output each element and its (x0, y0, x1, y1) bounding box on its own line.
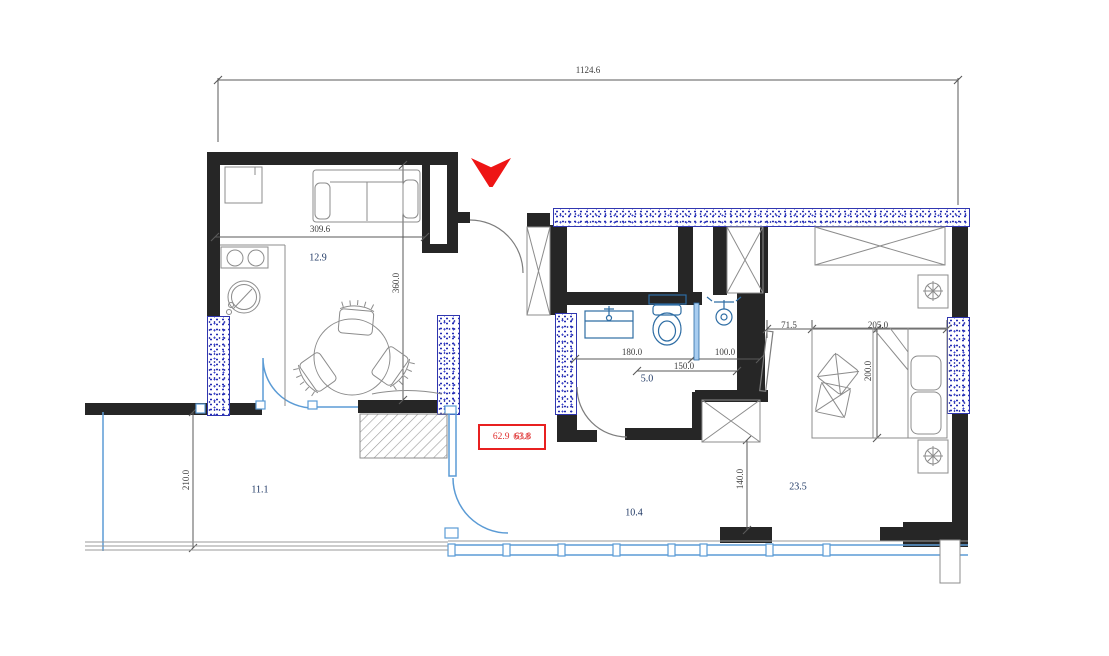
sofa (313, 170, 420, 222)
bedroom-door-leaf (760, 331, 773, 391)
shaft-box (527, 227, 763, 442)
floor-plan-canvas: 62.9 63.8 1124.6 309.6 360.0 210.0 180.0… (0, 0, 1109, 656)
fridge (225, 167, 262, 203)
door-swing (470, 220, 773, 437)
nightstand (918, 275, 948, 473)
bed (812, 328, 947, 438)
shower-faucet (707, 297, 741, 325)
dim-shower-width: 100.0 (715, 347, 735, 357)
dim-bed-gap: 71.5 (781, 320, 797, 330)
total-area-value-alt: 63.8 (515, 432, 532, 442)
dim-bath-inner: 150.0 (674, 361, 694, 371)
glass-door-frame (449, 412, 456, 476)
dim-overall-width: 1124.6 (576, 65, 600, 75)
room-area-living: 12.9 (309, 253, 327, 264)
wall-stub (940, 540, 960, 583)
dim-living-height: 360.0 (391, 273, 401, 293)
dim-terrace-height: 210.0 (181, 470, 191, 490)
kitchen-counter (220, 245, 285, 406)
toilet (649, 295, 686, 345)
console (372, 391, 442, 395)
dim-bed-width: 205.0 (868, 320, 888, 330)
dimension-lines (189, 76, 962, 552)
total-area-value: 62.9 (493, 432, 510, 442)
vanity-sink (585, 306, 633, 338)
chair (338, 299, 375, 336)
windows (103, 358, 968, 556)
room-area-hall: 10.4 (625, 508, 643, 519)
total-area-box: 62.9 63.8 (478, 424, 546, 450)
room-area-bedroom: 23.5 (789, 482, 807, 493)
plan-linework (0, 0, 1109, 656)
window-mullions (196, 401, 949, 556)
glass-door-swing (453, 478, 508, 533)
furniture (220, 167, 960, 583)
dim-living-width: 309.6 (310, 224, 330, 234)
shower-glass (694, 303, 699, 360)
dim-bed-length: 200.0 (863, 361, 873, 381)
dim-hall-height: 140.0 (735, 469, 745, 489)
dim-bath-width: 180.0 (622, 347, 642, 357)
hatched-area (360, 414, 447, 458)
wardrobe (815, 227, 945, 265)
room-area-terrace: 11.1 (251, 485, 268, 496)
dining-table (314, 319, 390, 395)
room-area-bathroom: 5.0 (641, 374, 654, 385)
